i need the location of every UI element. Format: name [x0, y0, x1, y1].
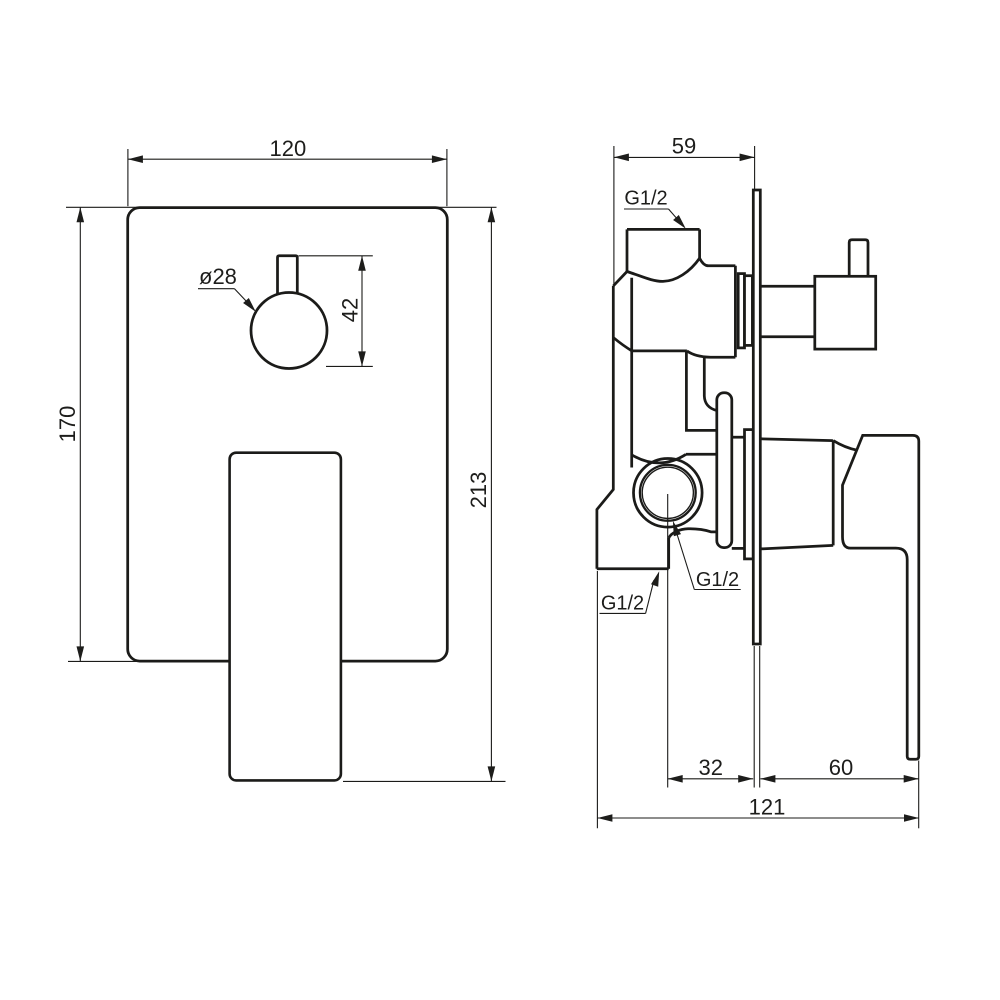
svg-text:42: 42: [338, 298, 363, 322]
svg-text:32: 32: [699, 755, 723, 780]
svg-text:213: 213: [466, 472, 491, 509]
svg-text:120: 120: [270, 136, 307, 161]
svg-text:G1/2: G1/2: [601, 592, 644, 614]
svg-text:60: 60: [829, 755, 853, 780]
svg-text:59: 59: [672, 134, 696, 159]
svg-text:121: 121: [749, 795, 786, 820]
svg-text:G1/2: G1/2: [696, 569, 739, 591]
svg-text:G1/2: G1/2: [624, 187, 667, 209]
svg-text:ø28: ø28: [199, 264, 237, 289]
svg-text:170: 170: [55, 406, 80, 443]
